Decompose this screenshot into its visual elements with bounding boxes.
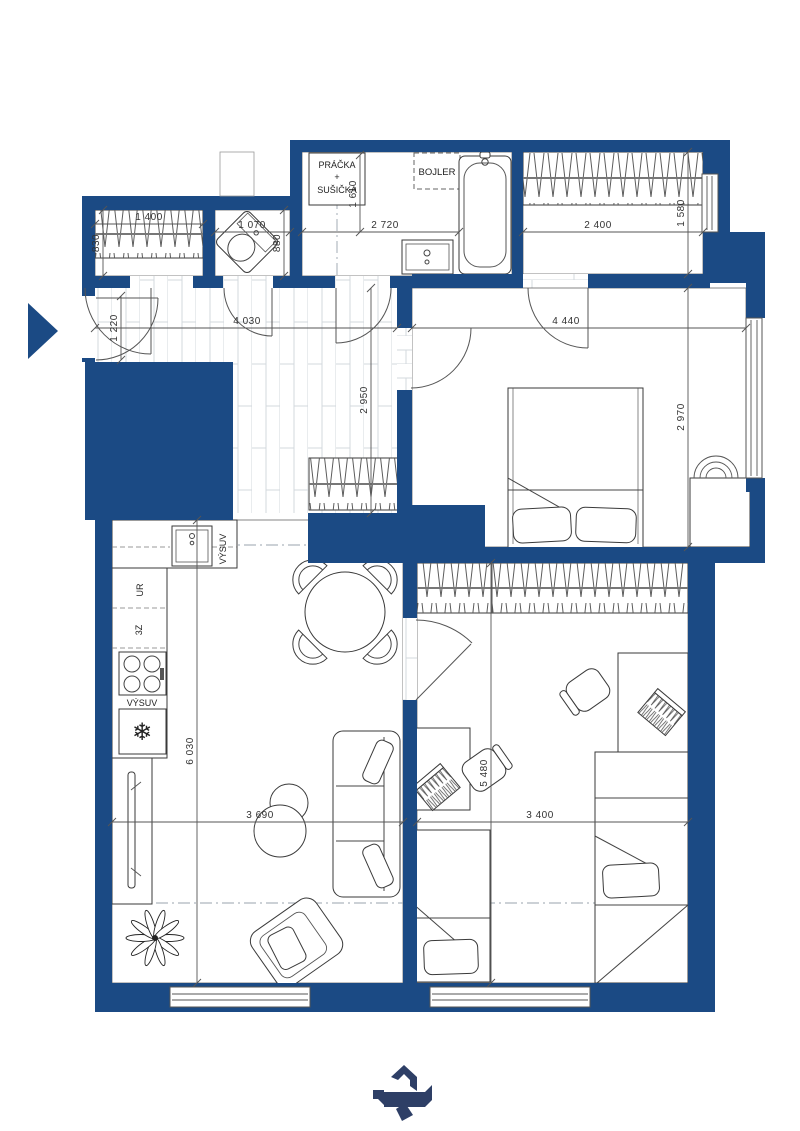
wall [397, 288, 412, 328]
floor-plan-svg: ❄ [0, 0, 800, 1131]
hall-wardrobe [309, 458, 400, 510]
wall [403, 563, 417, 618]
closet-door-floor [130, 276, 193, 288]
washer-label-line3: SUŠIČKA [317, 185, 357, 195]
wall [688, 563, 715, 983]
dim-kids-width: 3 400 [526, 810, 554, 821]
cabinet-3z-label: 3Z [134, 624, 144, 635]
dim-living-width: 3 690 [246, 810, 274, 821]
wall [82, 196, 290, 210]
dim-wc-depth: 880 [272, 234, 283, 252]
wall [308, 513, 412, 563]
stove [119, 652, 166, 695]
wall [203, 210, 215, 278]
wc-door-floor [223, 276, 273, 288]
floor-plan-canvas: ❄ [0, 0, 800, 1131]
nook-window [702, 174, 718, 232]
dim-closet-depth: 830 [91, 234, 102, 252]
wall [85, 362, 233, 520]
kids-door [416, 620, 472, 700]
wall [746, 478, 765, 492]
bedroom-door-floor [397, 328, 412, 390]
wall [412, 547, 765, 563]
wall [82, 276, 130, 288]
kids-wardrobe [417, 563, 688, 613]
nook-wardrobe [523, 152, 703, 205]
dim-living-length: 6 030 [185, 737, 196, 765]
fridge-freezer: ❄ [119, 709, 166, 754]
pullout-stove-label: VÝSUV [127, 698, 158, 708]
sofa [333, 731, 400, 897]
cabinet-ur-label: UR [135, 583, 145, 596]
dining-table [305, 572, 385, 652]
wall [290, 140, 730, 152]
brand-logo-icon [373, 1065, 432, 1121]
entrance-opening [80, 296, 96, 358]
wall [750, 492, 765, 547]
bedroom-door [411, 328, 471, 388]
wall [588, 274, 710, 288]
washer-label-line1: PRÁČKA [318, 160, 355, 170]
wall [95, 520, 112, 992]
vent-shaft [220, 152, 254, 196]
bedroom-radiator [694, 456, 738, 478]
dim-kids-length: 5 480 [479, 759, 490, 787]
entrance-arrow-icon [28, 303, 58, 359]
dim-entry-width: 1 220 [109, 314, 120, 342]
wall [302, 276, 335, 288]
dim-hall-length: 2 950 [359, 386, 370, 414]
kids-bed-left [412, 830, 490, 982]
nook-opening-floor [523, 274, 588, 288]
wall [273, 276, 302, 288]
wall [397, 390, 412, 513]
wall [703, 140, 730, 174]
boiler-label: BOJLER [419, 167, 456, 178]
wall [412, 505, 485, 549]
freezer-icon: ❄ [132, 718, 152, 746]
wall [703, 232, 765, 283]
wall [290, 210, 302, 278]
dim-bedroom-width: 4 440 [552, 316, 580, 327]
kids-bed-right [595, 752, 688, 983]
kids-door-floor [403, 618, 417, 700]
wall [403, 700, 417, 983]
pullout-sink-label: VÝSUV [218, 534, 228, 565]
bath-door-floor [335, 276, 391, 288]
dim-nook-width: 2 400 [584, 220, 612, 231]
wall [290, 140, 302, 210]
wall [390, 276, 412, 288]
dim-nook-depth: 1 580 [676, 199, 687, 227]
wall [193, 276, 223, 288]
bedroom-bench [690, 478, 750, 547]
double-bed [508, 388, 643, 548]
kids-window [430, 987, 590, 1007]
living-window [170, 987, 310, 1007]
dim-wc-width: 1 070 [238, 220, 266, 231]
bathroom-sink [402, 240, 453, 274]
dim-closet-width: 1 400 [135, 212, 163, 223]
dim-hall-width: 4 030 [233, 316, 261, 327]
kitchen-sink [172, 526, 212, 566]
wall [412, 274, 512, 288]
plant [126, 909, 184, 966]
bathtub [459, 152, 511, 274]
wall [746, 283, 765, 318]
wall [512, 140, 523, 288]
kids-chair-right [557, 665, 613, 719]
dim-bath-width: 2 720 [371, 220, 399, 231]
bedroom-window [746, 318, 762, 478]
washer-label-line2: + [334, 172, 339, 182]
wall [718, 174, 730, 232]
armchair [246, 893, 348, 992]
dim-bedroom-depth: 2 970 [676, 403, 687, 431]
